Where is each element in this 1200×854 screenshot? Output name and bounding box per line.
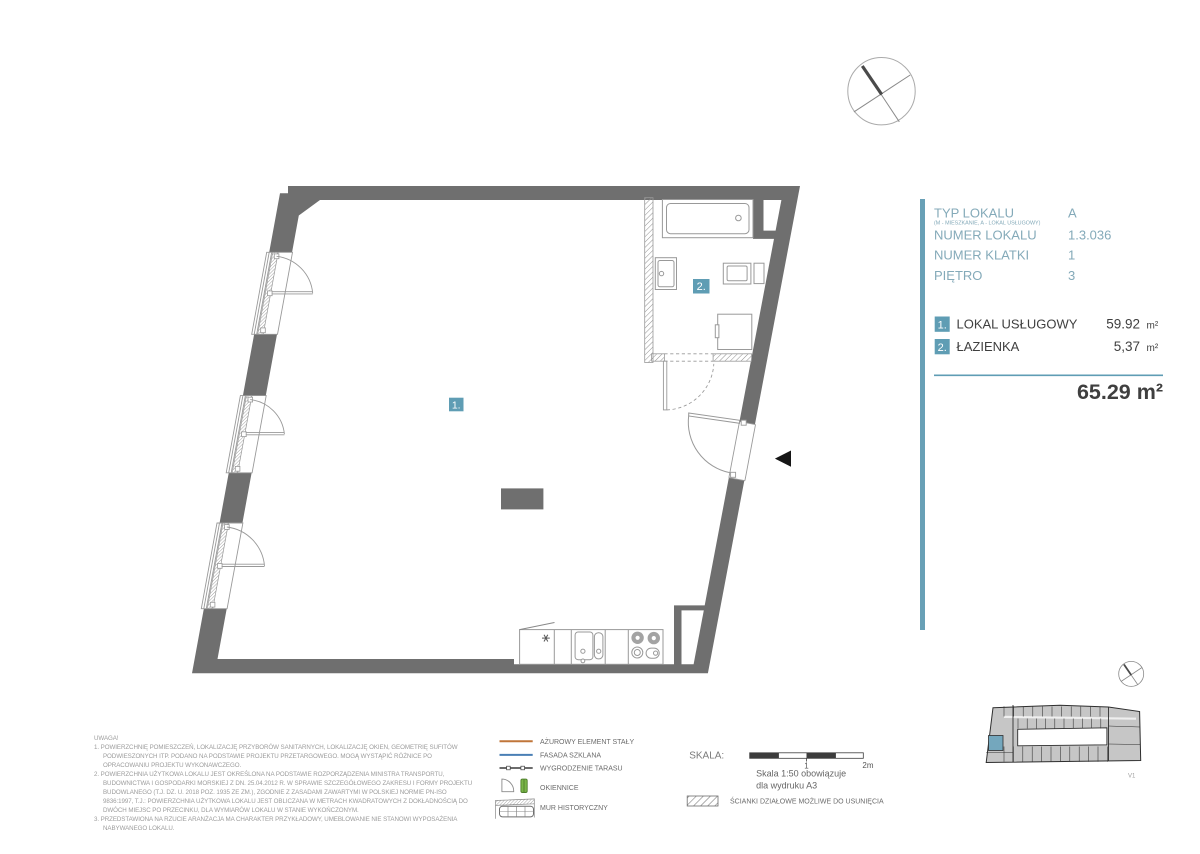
svg-text:A: A	[1068, 206, 1077, 221]
svg-text:OKIENNICE: OKIENNICE	[540, 785, 579, 792]
svg-text:NUMER KLATKI: NUMER KLATKI	[934, 248, 1029, 263]
svg-text:3: 3	[1068, 268, 1075, 283]
svg-text:ŚCIANKI DZIAŁOWE MOŻLIWE DO US: ŚCIANKI DZIAŁOWE MOŻLIWE DO USUNIĘCIA	[730, 797, 884, 806]
svg-text:WYGRODZENIE TARASU: WYGRODZENIE TARASU	[540, 766, 623, 773]
svg-text:ŁAZIENKA: ŁAZIENKA	[957, 339, 1020, 354]
svg-text:V1: V1	[1128, 774, 1136, 780]
svg-text:TYP LOKALU: TYP LOKALU	[934, 206, 1014, 221]
svg-text:2.: 2.	[938, 342, 947, 354]
svg-text:DWÓCH MIEJSC PO PRZECINKU, DLA: DWÓCH MIEJSC PO PRZECINKU, DLA WYMIARÓW …	[103, 807, 359, 814]
svg-text:dla wydruku A3: dla wydruku A3	[756, 780, 817, 790]
svg-text:9836:1997, T.J.: POWIERZCHNIA: 9836:1997, T.J.: POWIERZCHNIA UŻYTKOWA L…	[103, 797, 468, 805]
svg-text:1.: 1.	[938, 319, 947, 331]
svg-text:2. POWIERZCHNIA UŻYTKOWA LOK: 2. POWIERZCHNIA UŻYTKOWA LOKALU JEST OKR…	[94, 770, 445, 778]
svg-text:2m: 2m	[862, 761, 873, 770]
svg-text:FASADA SZKLANA: FASADA SZKLANA	[540, 753, 601, 760]
svg-text:Skala 1:50 obowiązuje: Skala 1:50 obowiązuje	[756, 769, 846, 779]
svg-text:65.29 m²: 65.29 m²	[1077, 380, 1163, 404]
svg-text:NABYWANEGO LOKALU.: NABYWANEGO LOKALU.	[103, 825, 175, 832]
svg-text:LOKAL USŁUGOWY: LOKAL USŁUGOWY	[957, 317, 1078, 332]
svg-text:5,37: 5,37	[1114, 339, 1140, 354]
svg-text:SKALA:: SKALA:	[689, 751, 724, 762]
svg-text:NUMER LOKALU: NUMER LOKALU	[934, 228, 1037, 243]
svg-text:BUDOWLANEGO (T.J. DZ. U. 2018: BUDOWLANEGO (T.J. DZ. U. 2018 POZ. 1935 …	[103, 789, 447, 796]
svg-text:BUDOWNICTWA I GOSPODARKI MORSK: BUDOWNICTWA I GOSPODARKI MORSKIEJ Z DN. …	[103, 780, 472, 787]
svg-text:1: 1	[1068, 248, 1075, 263]
svg-text:2.: 2.	[697, 281, 706, 293]
svg-text:UWAGA!: UWAGA!	[94, 735, 119, 742]
svg-text:m²: m²	[1147, 343, 1159, 354]
svg-text:PIĘTRO: PIĘTRO	[934, 268, 982, 283]
svg-text:OPRACOWANIU PROJEKTU WYKONAWCZ: OPRACOWANIU PROJEKTU WYKONAWCZEGO.	[103, 762, 241, 769]
svg-text:m²: m²	[1147, 321, 1159, 332]
svg-text:MUR HISTORYCZNY: MUR HISTORYCZNY	[540, 805, 608, 812]
svg-text:1. POWIERZCHNIĘ POMIESZCZEŃ,: 1. POWIERZCHNIĘ POMIESZCZEŃ, LOKALIZACJĘ…	[94, 744, 458, 751]
svg-text:PODWIESZONYCH ITP. PODANO NA: PODWIESZONYCH ITP. PODANO NA PODSTAWIE P…	[103, 753, 432, 760]
svg-text:AŻUROWY ELEMENT STAŁY: AŻUROWY ELEMENT STAŁY	[540, 737, 634, 746]
svg-text:(M - MIESZKANIE, A - LOKAL USŁ: (M - MIESZKANIE, A - LOKAL USŁUGOWY)	[934, 221, 1041, 227]
svg-text:1.3.036: 1.3.036	[1068, 228, 1111, 243]
svg-text:59.92: 59.92	[1106, 317, 1140, 332]
svg-text:1.: 1.	[452, 399, 461, 411]
svg-text:3. PRZEDSTAWIONA NA RZUCIE A: 3. PRZEDSTAWIONA NA RZUCIE ARANŻACJA MA …	[94, 816, 458, 823]
